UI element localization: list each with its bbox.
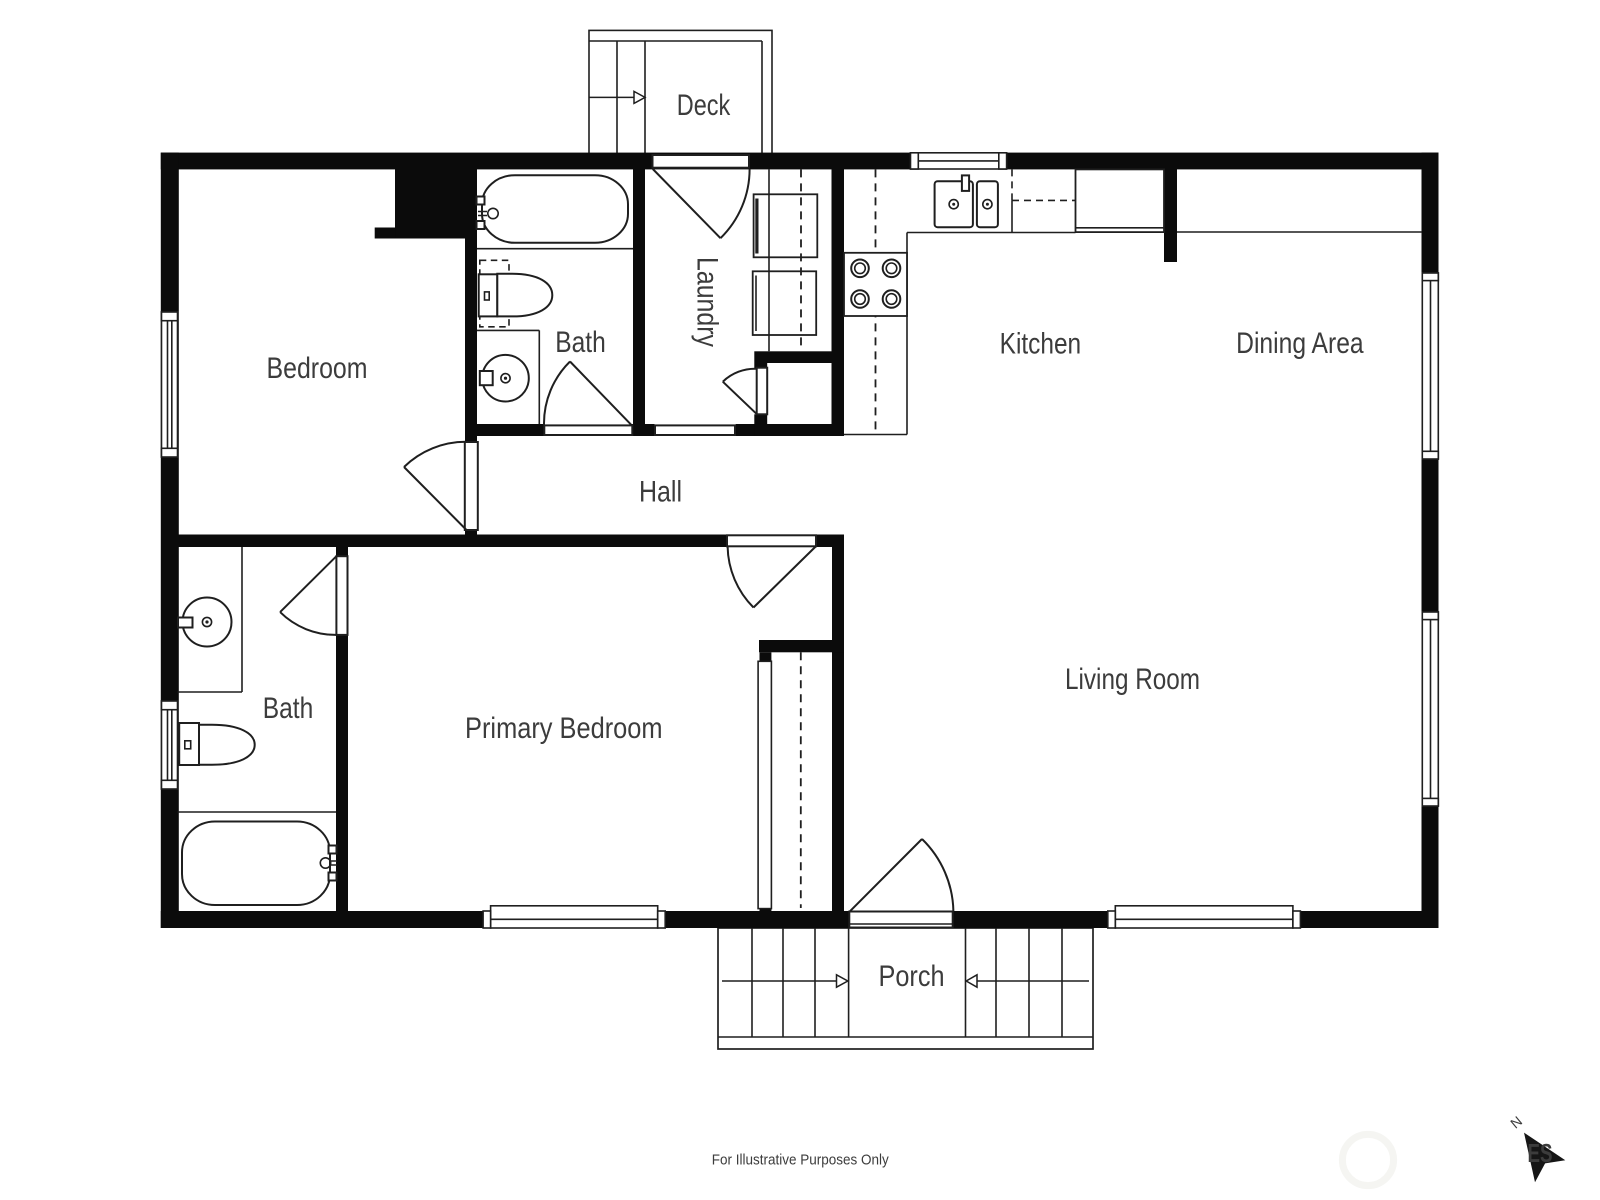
svg-text:Primary Bedroom: Primary Bedroom — [465, 712, 663, 745]
svg-text:Dining Area: Dining Area — [1236, 327, 1364, 360]
svg-text:Kitchen: Kitchen — [1000, 327, 1082, 360]
svg-text:Hall: Hall — [639, 476, 682, 509]
svg-text:Bath: Bath — [555, 326, 606, 359]
svg-text:For Illustrative Purposes Only: For Illustrative Purposes Only — [712, 1153, 890, 1169]
svg-text:Bath: Bath — [263, 692, 314, 725]
svg-text:Living Room: Living Room — [1065, 663, 1200, 696]
svg-text:Deck: Deck — [677, 89, 731, 122]
svg-text:ES: ES — [1528, 1138, 1553, 1168]
svg-text:Laundry: Laundry — [691, 257, 724, 347]
svg-text:Porch: Porch — [879, 960, 945, 993]
svg-text:Bedroom: Bedroom — [267, 352, 368, 385]
